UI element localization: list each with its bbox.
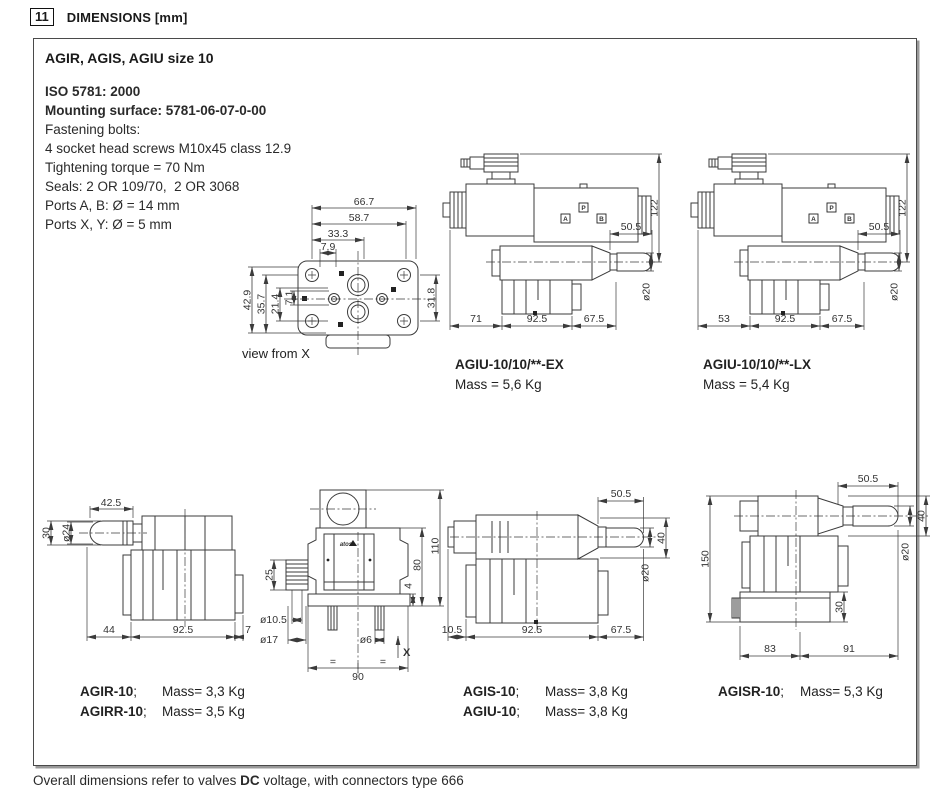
dim-label: ø20 [641, 283, 653, 301]
dim-label: ø20 [889, 283, 901, 301]
dim-label: 66.7 [354, 196, 375, 208]
section-title: DIMENSIONS [mm] [67, 10, 188, 25]
port-marker [338, 322, 343, 327]
dim-label: 7 [245, 624, 251, 636]
model-name: AGISR-10 [718, 684, 780, 699]
model-row: AGISR-10; Mass= 5,3 Kg [718, 682, 883, 702]
dim-label: 44 [103, 624, 115, 636]
section-header: 11 DIMENSIONS [mm] [30, 8, 187, 26]
dim-label: 4 [403, 583, 415, 589]
port-label-a: A [563, 216, 568, 223]
model-mass: Mass = 5,6 Kg [455, 375, 564, 395]
model-name: AGIRR-10 [80, 704, 143, 719]
dim-label: 92.5 [522, 624, 543, 636]
datasheet-page: 11 DIMENSIONS [mm] AGIR, AGIS, AGIU size… [0, 0, 948, 800]
dim-label: 122 [897, 199, 909, 217]
dim-label: 83 [764, 643, 776, 655]
caption-agis-group: AGIS-10; Mass= 3,8 Kg AGIU-10; Mass= 3,8… [463, 682, 628, 722]
model-name: AGIR-10 [80, 684, 133, 699]
dim-label: 21.4 [270, 294, 282, 315]
dim-label: 25 [264, 569, 276, 581]
view-from-x-caption: view from X [242, 346, 310, 361]
drawing-agis: 50.5 40 ø20 10.5 92.5 67.5 [438, 485, 673, 660]
model-name: AGIU-10 [463, 704, 516, 719]
dim-label: 90 [352, 671, 364, 682]
port-label-a: A [811, 216, 816, 223]
dim-label: ø17 [260, 634, 278, 646]
drawing-front-view: atos 110 80 4 25 ø10.5 ø17 ø6 X = [258, 482, 458, 682]
model-row: AGIS-10; Mass= 3,8 Kg [463, 682, 628, 702]
dim-label: 42.9 [242, 290, 254, 311]
model-mass: Mass= 3,8 Kg [545, 682, 628, 702]
model-row: AGIR-10; Mass= 3,3 Kg [80, 682, 245, 702]
dim-label: 50.5 [621, 221, 642, 233]
caption-agiu-lx: AGIU-10/10/**-LX Mass = 5,4 Kg [703, 355, 811, 395]
dim-label: 92.5 [775, 313, 796, 325]
model-mass: Mass = 5,4 Kg [703, 375, 811, 395]
model-mass: Mass= 3,3 Kg [162, 682, 245, 702]
spec-torque: Tightening torque = 70 Nm [45, 158, 291, 177]
dim-label: 30 [834, 601, 846, 613]
dim-label: ø20 [900, 543, 912, 561]
dim-label: 92.5 [527, 313, 548, 325]
spec-iso: ISO 5781: 2000 [45, 82, 291, 101]
caption-agisr-group: AGISR-10; Mass= 5,3 Kg [718, 682, 883, 702]
caption-agiu-ex: AGIU-10/10/**-EX Mass = 5,6 Kg [455, 355, 564, 395]
dim-label: 31.8 [426, 288, 438, 309]
drawing-agiu-lx: P A B 50.5 122 ø20 53 92.5 67.5 [688, 150, 913, 345]
caption-agir-group: AGIR-10; Mass= 3,3 Kg AGIRR-10; Mass= 3,… [80, 682, 245, 722]
port-label-p: P [581, 205, 586, 212]
dim-label: ø20 [640, 564, 652, 582]
dim-label: 50.5 [858, 473, 879, 485]
dim-label: 91 [843, 643, 855, 655]
dim-label: 7.9 [321, 241, 336, 253]
equal-mark: = [330, 656, 336, 668]
dim-label: 7.1 [284, 291, 296, 306]
port-label-b: B [847, 216, 852, 223]
model-row: AGIRR-10; Mass= 3,5 Kg [80, 702, 245, 722]
drawing-agir: 42.5 30 ø24 44 92.5 7 [35, 495, 255, 650]
panel-title: AGIR, AGIS, AGIU size 10 [45, 50, 214, 66]
dim-label: 58.7 [349, 212, 370, 224]
dim-label: 50.5 [869, 221, 890, 233]
model-row: AGIU-10; Mass= 3,8 Kg [463, 702, 628, 722]
model-mass: Mass= 5,3 Kg [800, 682, 883, 702]
port-label-b: B [599, 216, 604, 223]
spec-mounting-surface: Mounting surface: 5781-06-07-0-00 [45, 101, 291, 120]
dim-label: 30 [41, 527, 53, 539]
drawing-view-from-x: 66.7 58.7 33.3 7.9 42.9 35.7 21.4 7.1 31… [240, 193, 460, 363]
dim-label: 67.5 [584, 313, 605, 325]
dim-label: 122 [649, 199, 661, 217]
spec-fastening-bolts: Fastening bolts: [45, 120, 291, 139]
model-mass: Mass= 3,8 Kg [545, 702, 628, 722]
dim-label: 42.5 [101, 497, 122, 509]
dim-label: 40 [916, 510, 928, 522]
dim-label: ø10.5 [260, 614, 287, 626]
section-number: 11 [30, 8, 54, 26]
dim-label: ø24 [61, 524, 73, 542]
dim-label: 67.5 [832, 313, 853, 325]
port-label-p: P [829, 205, 834, 212]
model-name: AGIU-10/10/**-EX [455, 355, 564, 375]
dim-label: 50.5 [611, 488, 632, 500]
dim-label: 40 [656, 532, 668, 544]
dim-label: 67.5 [611, 624, 632, 636]
model-name: AGIS-10 [463, 684, 516, 699]
dim-label: 10.5 [442, 624, 463, 636]
model-mass: Mass= 3,5 Kg [162, 702, 245, 722]
x-axis-label: X [403, 647, 411, 659]
dim-label: 53 [718, 313, 730, 325]
footer-note: Overall dimensions refer to valves DC vo… [33, 773, 464, 788]
port-marker [302, 296, 307, 301]
dim-label: 33.3 [328, 228, 349, 240]
dim-label: ø6 [360, 634, 372, 646]
drawing-agisr: 50.5 40 ø20 150 30 83 91 [688, 470, 933, 680]
dim-label: 150 [700, 550, 712, 568]
dim-label: 92.5 [173, 624, 194, 636]
dim-label: 80 [412, 559, 424, 571]
equal-mark: = [380, 656, 386, 668]
drawing-agiu-ex: P A B 50.5 122 ø20 71 92.5 67.5 [440, 150, 665, 345]
port-marker [339, 271, 344, 276]
model-name: AGIU-10/10/**-LX [703, 355, 811, 375]
port-marker [391, 287, 396, 292]
dim-label: 71 [470, 313, 482, 325]
spec-screws: 4 socket head screws M10x45 class 12.9 [45, 139, 291, 158]
dim-label: 35.7 [256, 294, 268, 315]
